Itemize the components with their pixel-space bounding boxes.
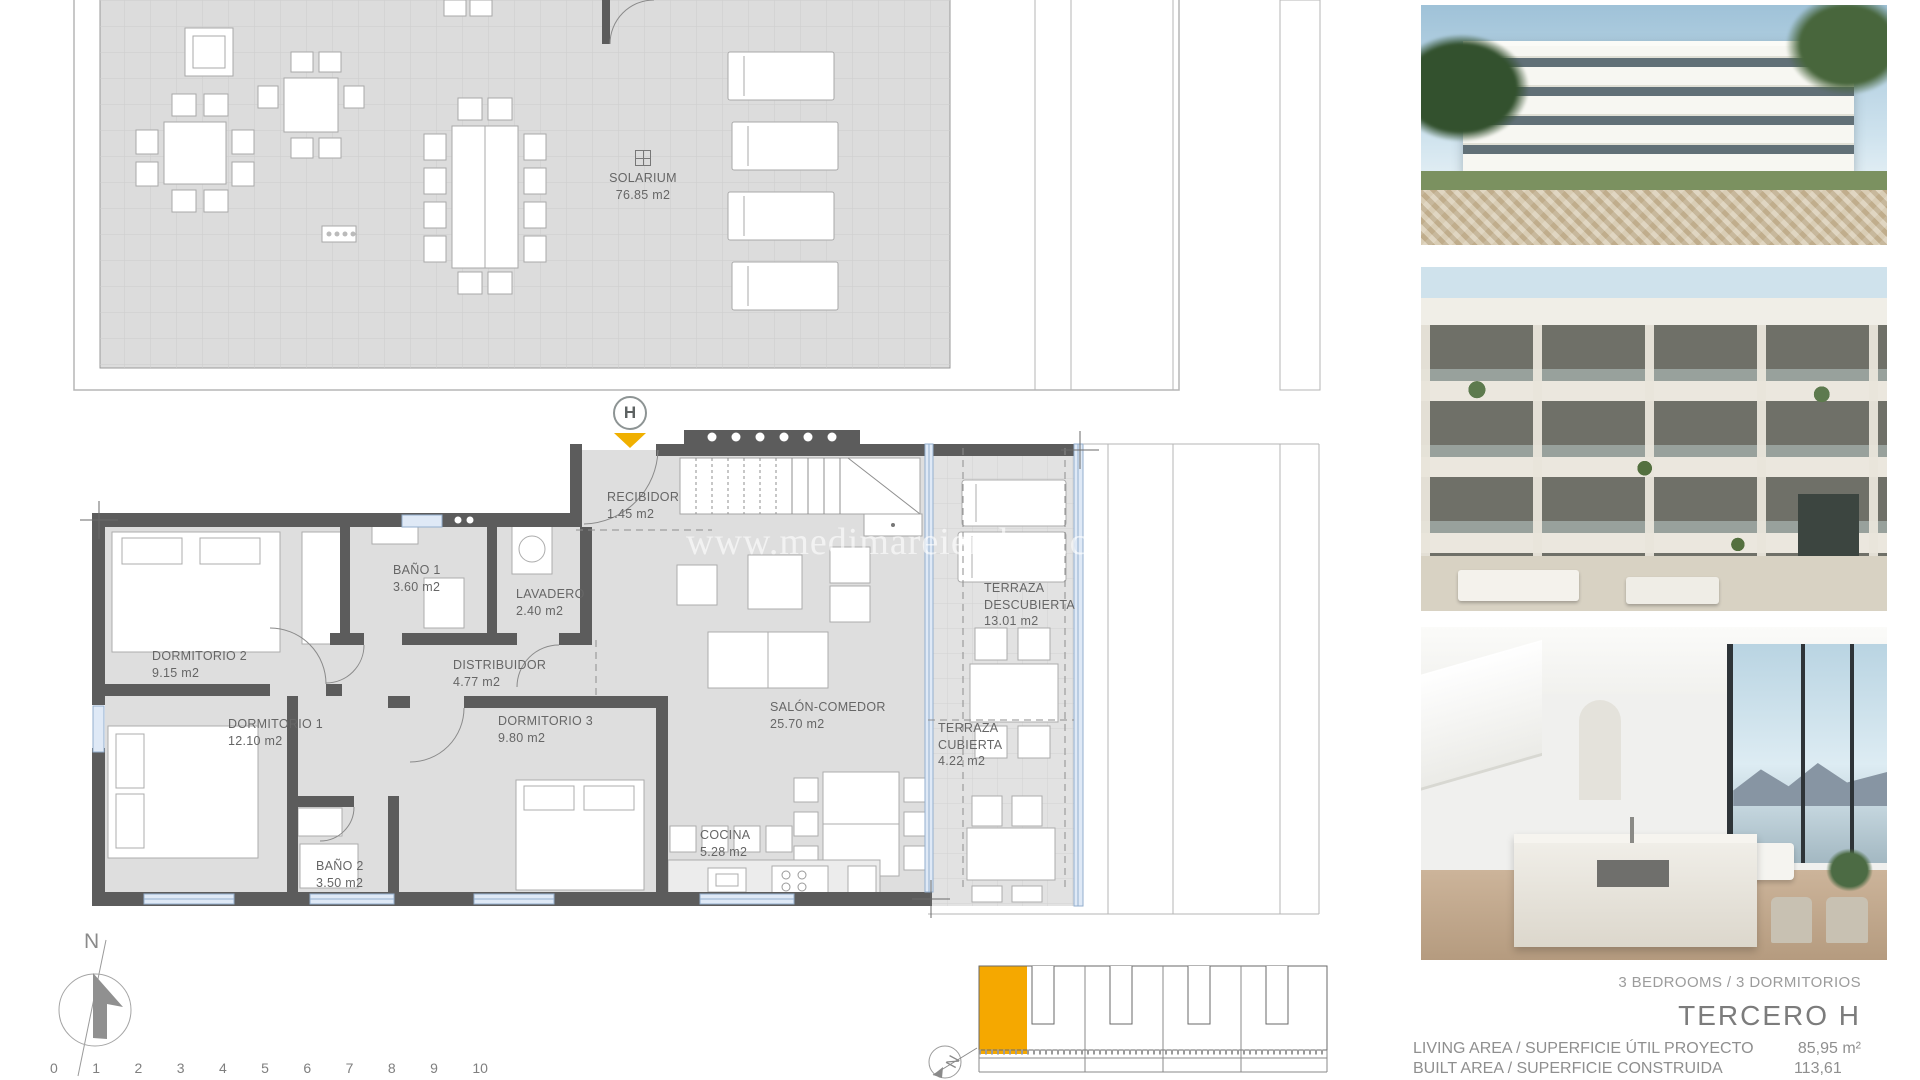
interior-window xyxy=(1727,644,1887,864)
entrance-marker: H xyxy=(612,396,648,448)
room-label-dormitorio3: DORMITORIO 39.80 m2 xyxy=(498,713,593,746)
entrance-arrow-icon xyxy=(614,433,646,448)
room-label-terraza-descubierta: TERRAZA DESCUBIERTA13.01 m2 xyxy=(984,580,1078,630)
kitchen-island xyxy=(1514,834,1756,946)
room-label-salon: SALÓN-COMEDOR25.70 m2 xyxy=(770,699,886,732)
key-plan: N xyxy=(925,952,1335,1080)
compass-north-label: N xyxy=(84,930,99,953)
photo-building-facade xyxy=(1421,267,1887,611)
interior-plant xyxy=(1817,840,1882,900)
room-label-cocina: COCINA5.28 m2 xyxy=(700,827,750,860)
bar-stool xyxy=(1826,897,1868,944)
bar-stool xyxy=(1771,897,1813,944)
solarium-icon xyxy=(635,150,651,166)
terrace-sofa xyxy=(1458,570,1579,601)
key-plan-north-arrow: N xyxy=(929,1046,977,1078)
room-label-lavadero: LAVADERO2.40 m2 xyxy=(516,586,585,619)
terrace-sofa xyxy=(1626,577,1719,605)
scale-bar: 01 23 45 67 89 10 xyxy=(50,1060,488,1076)
room-label-bano1: BAÑO 13.60 m2 xyxy=(393,562,441,595)
key-plan-highlight-unit xyxy=(979,966,1027,1054)
watermark: www.medimareiendom.com xyxy=(686,520,1138,564)
room-label-dormitorio1: DORMITORIO 112.10 m2 xyxy=(228,716,323,749)
summary-row: BUILT AREA / SUPERFICIE CONSTRUIDA PROYE… xyxy=(1413,1059,1861,1080)
north-compass: N xyxy=(48,926,148,1080)
room-label-bano2: BAÑO 23.50 m2 xyxy=(316,858,364,891)
room-label-dormitorio2: DORMITORIO 29.15 m2 xyxy=(152,648,247,681)
entrance-letter: H xyxy=(613,396,647,430)
summary-row: LIVING AREA / SUPERFICIE ÚTIL PROYECTO85… xyxy=(1413,1039,1861,1059)
photo-interior-kitchen-living xyxy=(1421,627,1887,960)
bedrooms-line: 3 BEDROOMS / 3 DORMITORIOS xyxy=(1413,974,1861,991)
unit-summary: 3 BEDROOMS / 3 DORMITORIOS TERCERO H LIV… xyxy=(1413,974,1861,1080)
room-label-solarium: SOLARIUM 76.85 m2 xyxy=(588,150,698,203)
floor-plan-solarium xyxy=(72,0,1332,396)
unit-title: TERCERO H xyxy=(1413,1000,1861,1032)
room-label-recibidor: RECIBIDOR1.45 m2 xyxy=(607,489,679,522)
stone-wall xyxy=(1421,190,1887,245)
plan-sheet: SOLARIUM 76.85 m2 H xyxy=(0,0,1920,1080)
photo-building-exterior xyxy=(1421,5,1887,245)
room-label-distribuidor: DISTRIBUIDOR4.77 m2 xyxy=(453,657,546,690)
room-label-terraza-cubierta: TERRAZA CUBIERTA4.22 m2 xyxy=(938,720,1018,770)
